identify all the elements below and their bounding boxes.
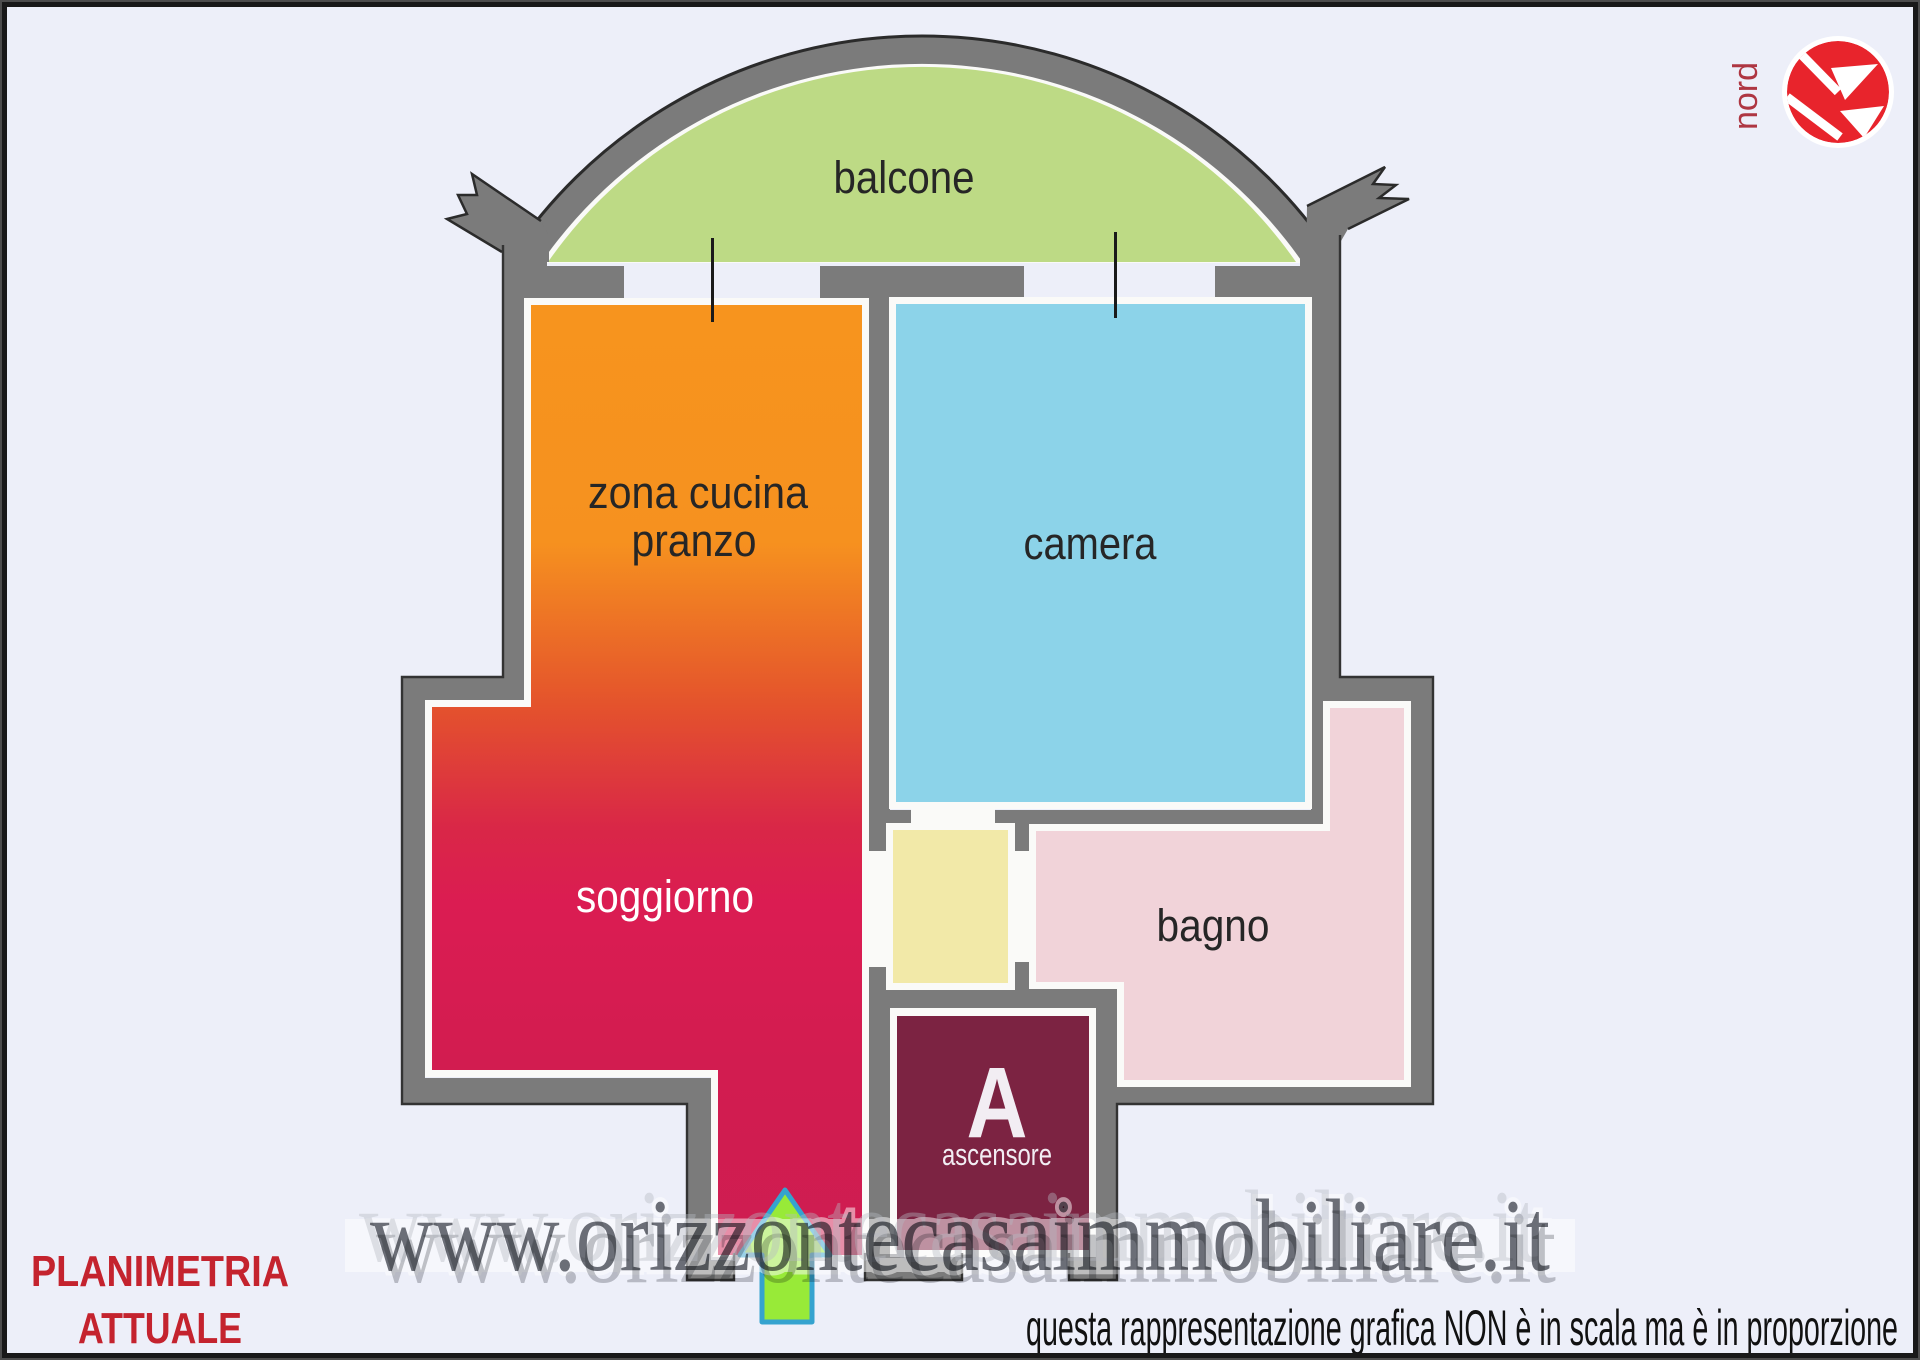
svg-text:PLANIMETRIA: PLANIMETRIA (31, 1247, 289, 1296)
svg-text:questa rappresentazione grafic: questa rappresentazione grafica NON è in… (1026, 1300, 1898, 1356)
svg-text:www.orizzontecasaimmobiliare.i: www.orizzontecasaimmobiliare.it (370, 1179, 1550, 1293)
svg-text:ATTUALE: ATTUALE (78, 1304, 242, 1353)
svg-text:nord: nord (1727, 62, 1765, 130)
svg-text:ascensore: ascensore (942, 1137, 1052, 1172)
svg-text:zona cucina: zona cucina (588, 467, 809, 518)
svg-text:bagno: bagno (1157, 900, 1270, 951)
svg-text:soggiorno: soggiorno (576, 871, 754, 922)
svg-text:balcone: balcone (834, 152, 975, 203)
svg-text:camera: camera (1024, 518, 1158, 569)
svg-text:pranzo: pranzo (632, 515, 757, 566)
